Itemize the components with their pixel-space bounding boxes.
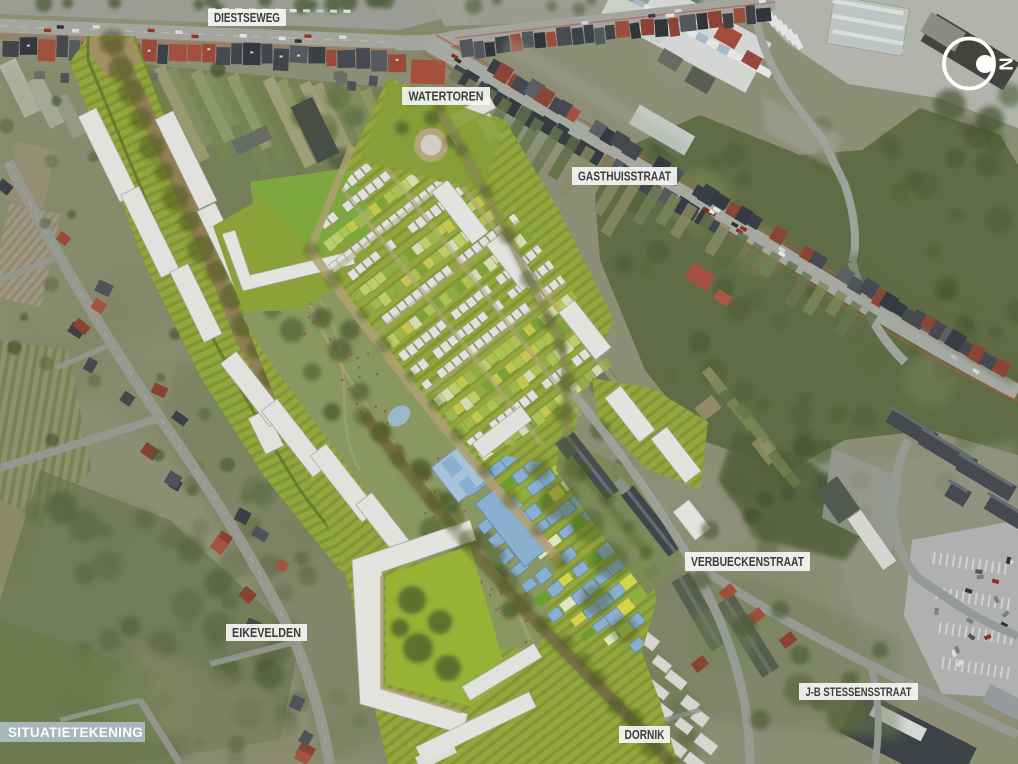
svg-text:DORNIK: DORNIK [625,728,665,742]
svg-text:SITUATIETEKENING: SITUATIETEKENING [8,725,143,740]
svg-text:WATERTOREN: WATERTOREN [409,90,484,104]
svg-text:J-B STESSENSSTRAAT: J-B STESSENSSTRAAT [806,685,913,699]
svg-text:VERBUECKENSTRAAT: VERBUECKENSTRAAT [691,555,804,569]
svg-text:DIESTSEWEG: DIESTSEWEG [214,11,280,25]
svg-text:N: N [996,57,1017,70]
svg-text:GASTHUISSTRAAT: GASTHUISSTRAAT [578,170,671,184]
svg-text:EIKEVELDEN: EIKEVELDEN [232,626,301,640]
